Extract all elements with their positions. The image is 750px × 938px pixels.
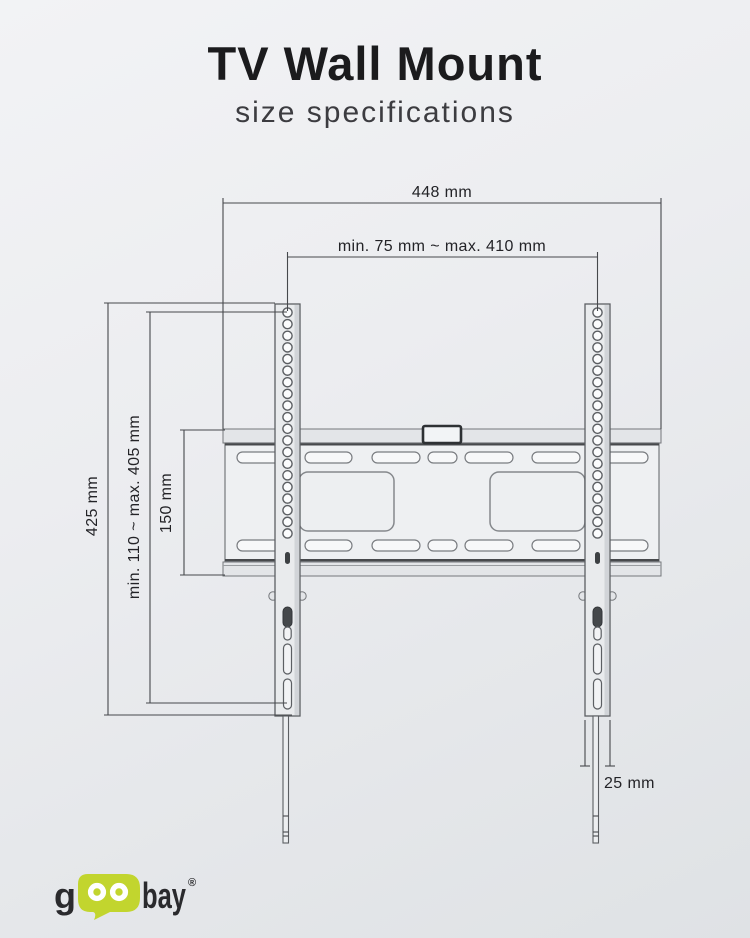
vesa-mounting-hole xyxy=(283,366,292,375)
brand-letter-g: g xyxy=(54,875,76,916)
mount-diagram: 448 mm min. 75 mm ~ max. 410 mm 425 mm m… xyxy=(0,0,750,938)
locking-slot xyxy=(595,552,600,564)
vesa-mounting-hole xyxy=(283,389,292,398)
vesa-mounting-hole xyxy=(593,506,602,515)
dim-label-bracket-width: 25 mm xyxy=(604,775,655,792)
vesa-mounting-hole xyxy=(593,529,602,538)
vesa-mounting-hole xyxy=(283,529,292,538)
dim-label-hole-pattern-height: min. 110 ~ max. 405 mm xyxy=(126,415,143,599)
safety-strap xyxy=(593,716,599,843)
mounting-slot xyxy=(305,540,352,551)
mounting-slot xyxy=(532,540,580,551)
rail-slot xyxy=(284,627,291,640)
vesa-mounting-hole xyxy=(283,413,292,422)
mounting-slot xyxy=(532,452,580,463)
mounting-slot xyxy=(372,540,420,551)
brand-logo: g bay ® xyxy=(54,874,196,920)
right-rail xyxy=(579,304,616,843)
vesa-mounting-hole xyxy=(283,482,292,491)
vesa-mounting-hole xyxy=(283,436,292,445)
vesa-mounting-hole xyxy=(593,424,602,433)
dim-label-plate-height: 150 mm xyxy=(158,473,175,533)
vesa-mounting-hole xyxy=(593,413,602,422)
rail-slot xyxy=(594,644,602,674)
vesa-mounting-hole xyxy=(283,494,292,503)
dim-label-hole-pattern-width: min. 75 mm ~ max. 410 mm xyxy=(338,238,546,255)
vesa-mounting-hole xyxy=(283,517,292,526)
rail-slot xyxy=(594,627,601,640)
vesa-mounting-hole xyxy=(593,459,602,468)
vesa-mounting-hole xyxy=(283,320,292,329)
vesa-mounting-hole xyxy=(593,517,602,526)
mounting-slot xyxy=(305,452,352,463)
dim-label-bracket-height: 425 mm xyxy=(84,476,101,536)
vesa-mounting-hole xyxy=(593,436,602,445)
rail-shading xyxy=(295,305,300,715)
vesa-mounting-hole xyxy=(283,343,292,352)
rail-slot xyxy=(284,679,292,709)
vesa-mounting-hole xyxy=(593,471,602,480)
brand-letters-bay: bay xyxy=(142,875,186,916)
mounting-slot xyxy=(428,540,457,551)
mounting-slot xyxy=(465,452,513,463)
plate-opening-left xyxy=(299,472,394,531)
vesa-mounting-hole xyxy=(593,401,602,410)
vesa-mounting-hole xyxy=(593,354,602,363)
mounting-slot xyxy=(465,540,513,551)
locking-slot xyxy=(285,552,290,564)
vesa-mounting-hole xyxy=(283,447,292,456)
vesa-mounting-hole xyxy=(593,320,602,329)
rail-slot xyxy=(594,679,602,709)
vesa-mounting-hole xyxy=(283,424,292,433)
vesa-mounting-hole xyxy=(283,471,292,480)
vesa-mounting-hole xyxy=(593,447,602,456)
vesa-mounting-hole xyxy=(593,389,602,398)
vesa-mounting-hole xyxy=(593,482,602,491)
brand-speech-bubble xyxy=(78,874,140,920)
rail-slot xyxy=(284,644,292,674)
vesa-mounting-hole xyxy=(283,506,292,515)
adjustment-bolt xyxy=(283,607,292,627)
plate-top-clip xyxy=(423,426,461,443)
vesa-mounting-hole xyxy=(593,366,602,375)
mounting-slot xyxy=(428,452,457,463)
vesa-mounting-hole xyxy=(283,354,292,363)
mounting-slot xyxy=(372,452,420,463)
rail-shading xyxy=(605,305,610,715)
left-rail xyxy=(269,304,306,843)
vesa-mounting-hole xyxy=(283,459,292,468)
safety-strap xyxy=(283,716,289,843)
vesa-mounting-hole xyxy=(593,343,602,352)
registered-trademark-symbol: ® xyxy=(188,877,196,889)
adjustment-bolt xyxy=(593,607,602,627)
spec-sheet: TV Wall Mount size specifications xyxy=(0,0,750,938)
vesa-mounting-hole xyxy=(593,331,602,340)
dim-label-plate-width: 448 mm xyxy=(412,184,472,201)
vesa-mounting-hole xyxy=(283,378,292,387)
vesa-mounting-hole xyxy=(593,378,602,387)
vesa-mounting-hole xyxy=(593,494,602,503)
plate-opening-right xyxy=(490,472,585,531)
vesa-mounting-hole xyxy=(283,331,292,340)
vesa-mounting-hole xyxy=(283,401,292,410)
